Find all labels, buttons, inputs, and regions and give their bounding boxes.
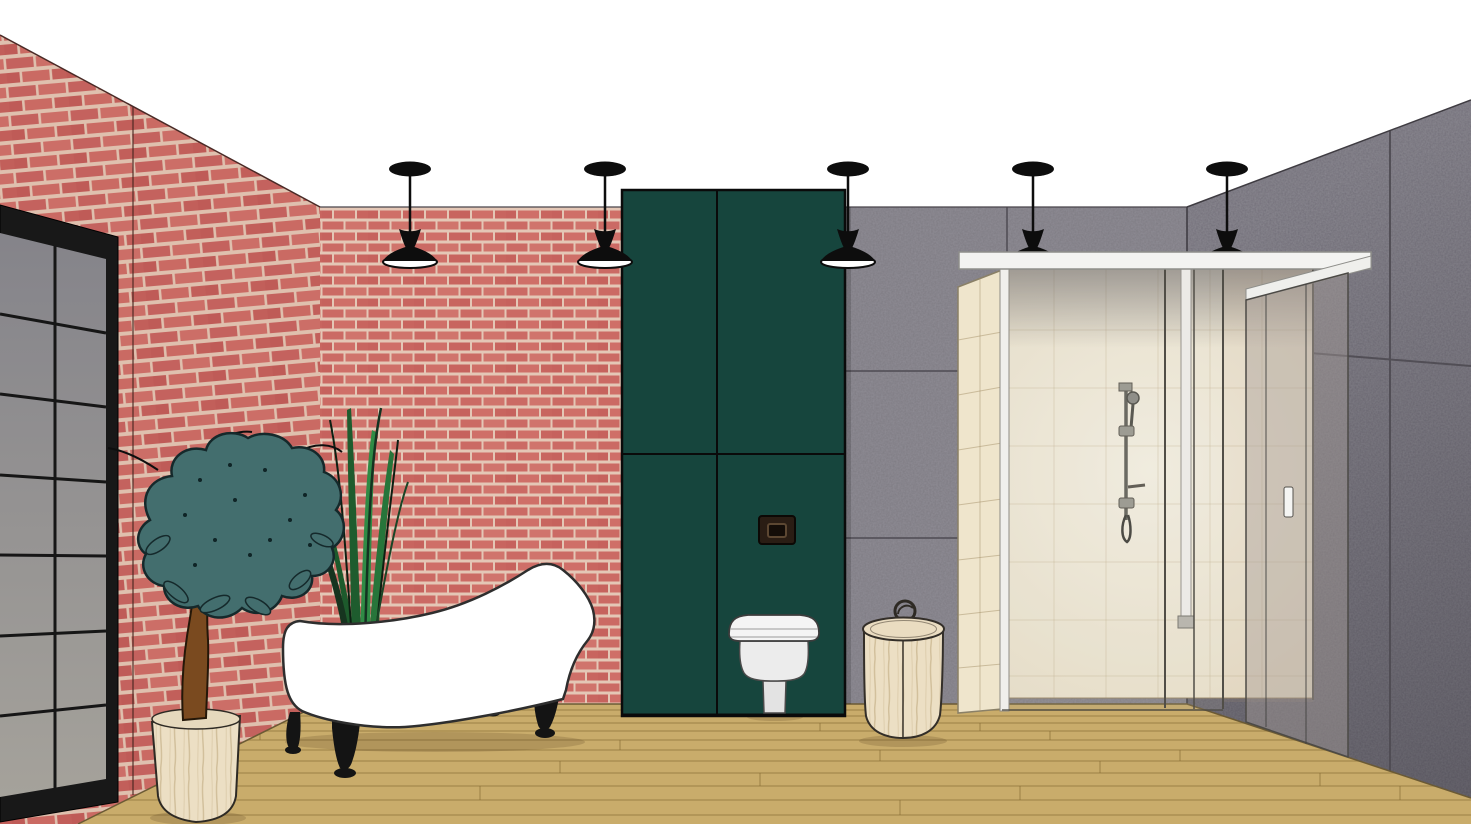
lidded-basket xyxy=(863,601,944,738)
glass-post-mid xyxy=(1181,268,1191,620)
post-shoe xyxy=(1178,616,1194,628)
shower-header xyxy=(959,252,1371,269)
toilet-pipe xyxy=(763,681,786,713)
shower-door xyxy=(1246,273,1348,757)
glass-post-left xyxy=(1000,266,1009,711)
door-handle xyxy=(1284,487,1293,517)
toilet-bowl xyxy=(740,641,809,681)
plant-pot xyxy=(152,716,240,822)
flush-button xyxy=(768,524,786,537)
window xyxy=(0,205,118,822)
scene-canvas xyxy=(0,0,1471,824)
glass-shower xyxy=(958,252,1371,757)
